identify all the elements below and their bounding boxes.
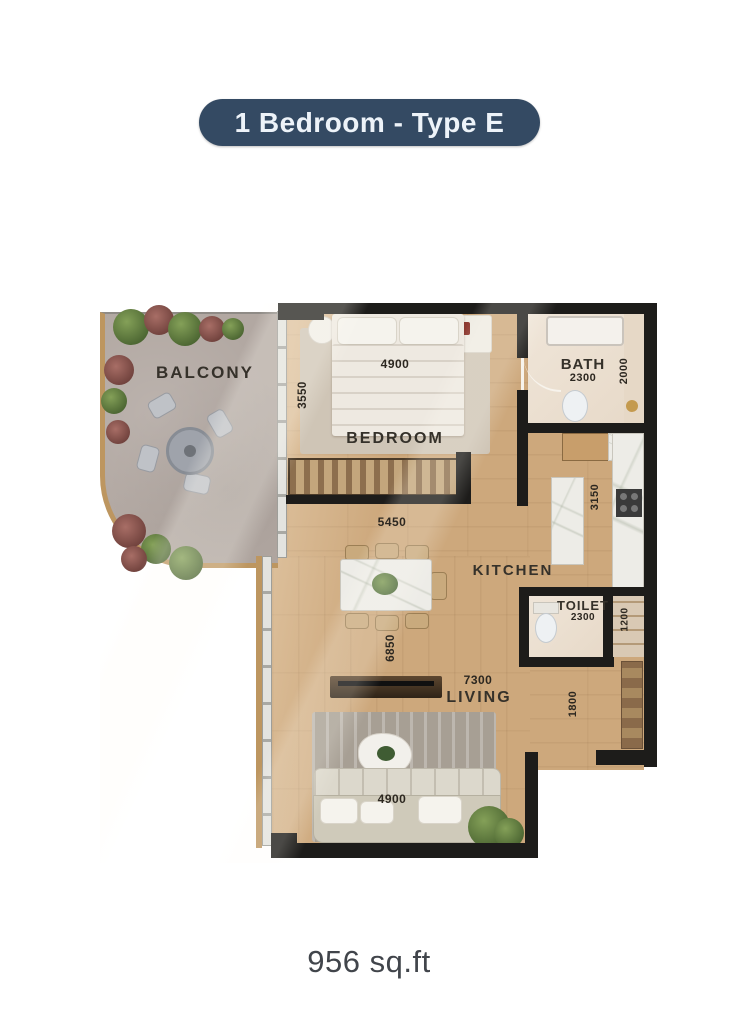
wall-segment — [517, 310, 528, 358]
tv-console — [330, 676, 442, 698]
dim-toilet-width: 2300 — [558, 612, 608, 623]
table-centerpiece — [372, 573, 398, 595]
coffee-table-plant — [377, 746, 395, 761]
wall-segment — [271, 833, 297, 858]
dim-kitchen-depth: 3150 — [589, 475, 601, 519]
plan-type-title: 1 Bedroom - Type E — [235, 107, 505, 139]
balcony-plant — [222, 318, 244, 340]
stove-burner — [620, 505, 627, 512]
wall-segment — [528, 423, 644, 433]
bed-pillow — [399, 317, 459, 345]
wardrobe — [288, 458, 458, 496]
floor-plan-page: 1 Bedroom - Type E — [0, 0, 738, 1024]
wall-segment — [596, 750, 657, 765]
kitchen-island — [551, 477, 584, 565]
dim-sofa-width: 4900 — [366, 792, 418, 806]
dim-toilet-depth: 1200 — [620, 598, 631, 642]
bedroom-balcony-window — [277, 311, 287, 558]
toilet-bowl — [535, 613, 557, 643]
balcony-plant — [106, 420, 130, 444]
dining-chair — [345, 613, 369, 629]
wall-segment — [280, 303, 657, 314]
dining-chair — [430, 572, 447, 600]
bath-door — [521, 354, 524, 394]
wall-segment — [644, 303, 657, 767]
stove-burner — [620, 493, 627, 500]
living-label: LIVING — [429, 689, 529, 707]
stove-burner — [631, 493, 638, 500]
balcony-plant — [121, 546, 147, 572]
dim-hall-depth: 1800 — [567, 682, 579, 726]
toilet-label: TOILET — [545, 598, 621, 613]
shoe-cabinet — [621, 661, 643, 749]
living-window-wall — [262, 556, 272, 846]
bath-label: BATH — [551, 356, 615, 373]
dim-bedroom-depth: 3550 — [297, 373, 309, 417]
dim-kitchen-width: 5450 — [366, 515, 418, 529]
wall-segment — [525, 752, 538, 855]
tv — [338, 681, 434, 686]
bed-pillow — [337, 317, 397, 345]
sofa-pillow — [418, 796, 462, 824]
balcony-plant — [104, 355, 134, 385]
balcony-plant — [113, 309, 149, 345]
balcony-label: BALCONY — [145, 363, 265, 383]
balcony-plant — [169, 546, 203, 580]
wall-segment — [271, 843, 538, 858]
dining-chair — [375, 543, 399, 559]
stove-burner — [631, 505, 638, 512]
wall-segment — [519, 587, 645, 596]
balcony-plant — [168, 312, 202, 346]
bath-toilet — [562, 390, 588, 422]
kitchen-cabinet — [562, 433, 612, 461]
bedroom-label: BEDROOM — [335, 430, 455, 448]
dim-bath-width: 2300 — [558, 372, 608, 384]
area-text: 956 sq.ft — [0, 944, 738, 980]
plan-type-badge: 1 Bedroom - Type E — [199, 99, 540, 146]
wall-segment — [517, 390, 528, 506]
sofa-pillow — [320, 798, 358, 824]
balcony-plant — [101, 388, 127, 414]
wall-segment — [286, 495, 470, 504]
balcony-table-center — [184, 445, 196, 457]
wall-segment — [519, 587, 529, 667]
wall-segment — [519, 657, 614, 667]
dim-bath-depth: 2000 — [618, 349, 630, 393]
balcony-plant — [112, 514, 146, 548]
bath-fixture — [626, 400, 638, 412]
kitchen-label: KITCHEN — [468, 562, 558, 579]
dim-living-width: 7300 — [452, 673, 504, 687]
dining-chair — [405, 613, 429, 629]
dim-bedroom-width: 4900 — [370, 357, 420, 371]
bathtub — [546, 316, 624, 346]
wall-segment — [278, 303, 324, 320]
dim-living-depth: 6850 — [385, 626, 397, 670]
